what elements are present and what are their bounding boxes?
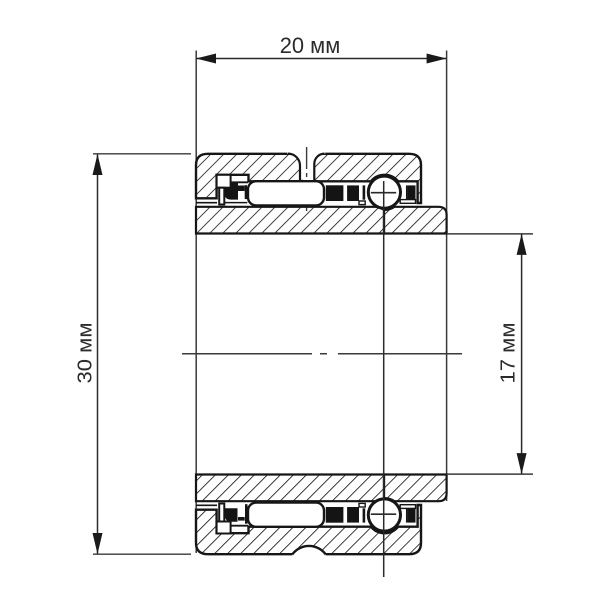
svg-text:20 мм: 20 мм	[280, 33, 341, 58]
svg-text:17 мм: 17 мм	[498, 323, 520, 384]
svg-text:30 мм: 30 мм	[75, 323, 97, 384]
